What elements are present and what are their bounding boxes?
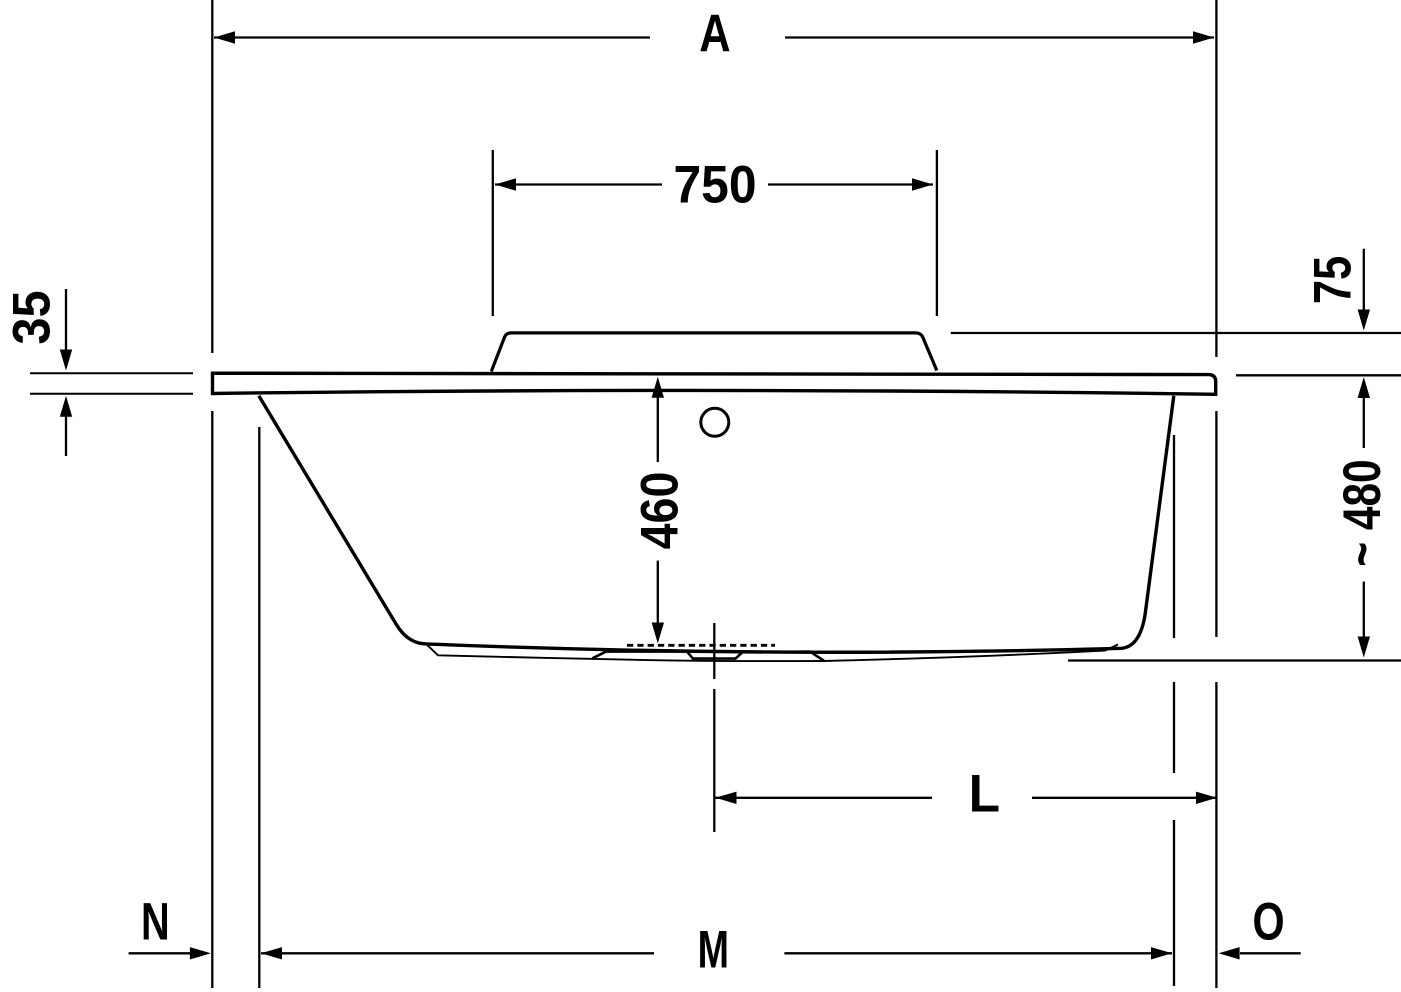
svg-text:35: 35 — [2, 290, 61, 344]
svg-text:N: N — [141, 892, 170, 951]
svg-text:460: 460 — [630, 472, 689, 550]
svg-text:750: 750 — [673, 154, 756, 214]
svg-text:75: 75 — [1303, 256, 1362, 304]
svg-text:O: O — [1253, 893, 1285, 952]
svg-text:~ 480: ~ 480 — [1334, 459, 1393, 566]
svg-text:M: M — [698, 919, 729, 979]
svg-text:A: A — [699, 4, 730, 63]
svg-text:L: L — [969, 765, 1000, 824]
